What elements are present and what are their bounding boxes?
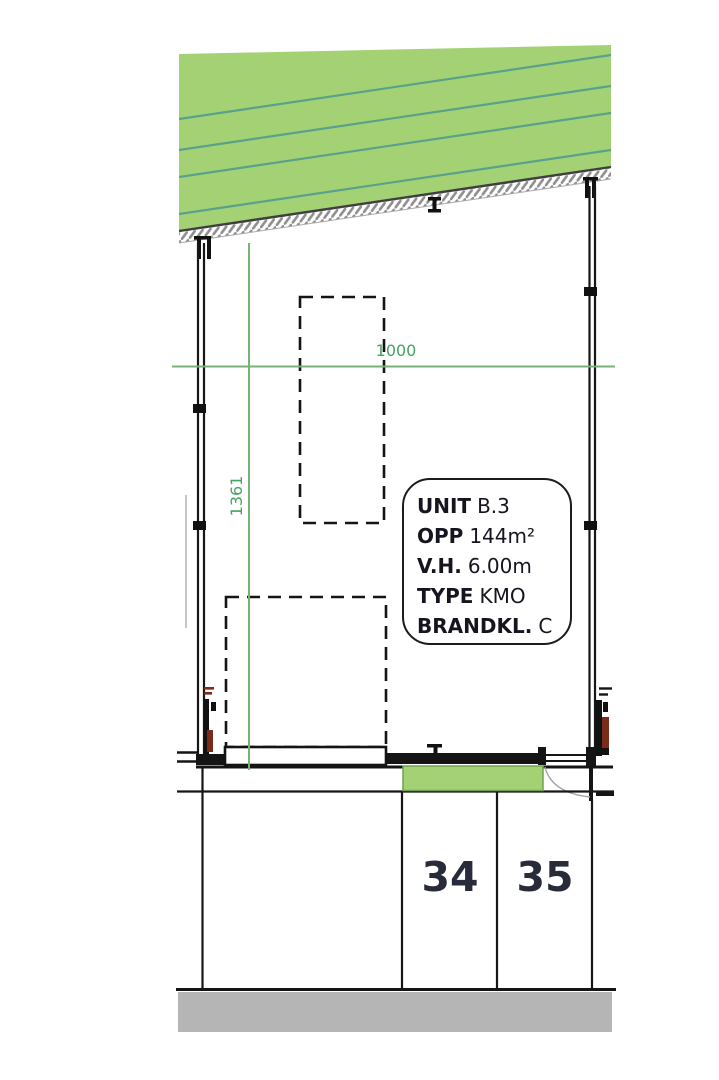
road-band bbox=[178, 992, 612, 1032]
right-wall bbox=[590, 186, 596, 756]
unit-info-row: V.H.6.00m bbox=[417, 551, 564, 581]
parking-space-number: 35 bbox=[498, 853, 592, 903]
unit-info-label: BRANDKL. bbox=[417, 614, 532, 638]
parking-space-number: 34 bbox=[403, 853, 497, 903]
left-wall bbox=[198, 243, 204, 756]
unit-info-row: BRANDKL.C bbox=[417, 611, 564, 641]
parking-green-strip bbox=[403, 766, 543, 791]
unit-info-label: TYPE bbox=[417, 584, 473, 608]
dashed-zone-upper bbox=[300, 297, 384, 523]
door-detail-right bbox=[596, 689, 612, 757]
unit-info-row: TYPEKMO bbox=[417, 581, 564, 611]
unit-info-card: UNITB.3 OPP144m² V.H.6.00m TYPEKMO BRAND… bbox=[402, 478, 572, 645]
unit-info-label: V.H. bbox=[417, 554, 462, 578]
unit-info-label: UNIT bbox=[417, 494, 471, 518]
unit-info-value: 6.00m bbox=[468, 554, 532, 578]
unit-info-row: OPP144m² bbox=[417, 521, 564, 551]
unit-info-value: B.3 bbox=[477, 494, 510, 518]
unit-info-label: OPP bbox=[417, 524, 463, 548]
unit-info-value: 144m² bbox=[469, 524, 535, 548]
plan-drawing bbox=[0, 0, 719, 1080]
door-detail-left bbox=[204, 687, 216, 755]
floor-plan-canvas: 1000 1361 UNITB.3 OPP144m² V.H.6.00m TYP… bbox=[0, 0, 719, 1080]
unit-info-value: KMO bbox=[479, 584, 525, 608]
column-symbol-top-left bbox=[194, 236, 211, 259]
dimension-width-label: 1000 bbox=[366, 342, 426, 360]
unit-info-row: UNITB.3 bbox=[417, 491, 564, 521]
dimension-depth-label: 1361 bbox=[228, 468, 246, 524]
unit-info-value: C bbox=[538, 614, 552, 638]
